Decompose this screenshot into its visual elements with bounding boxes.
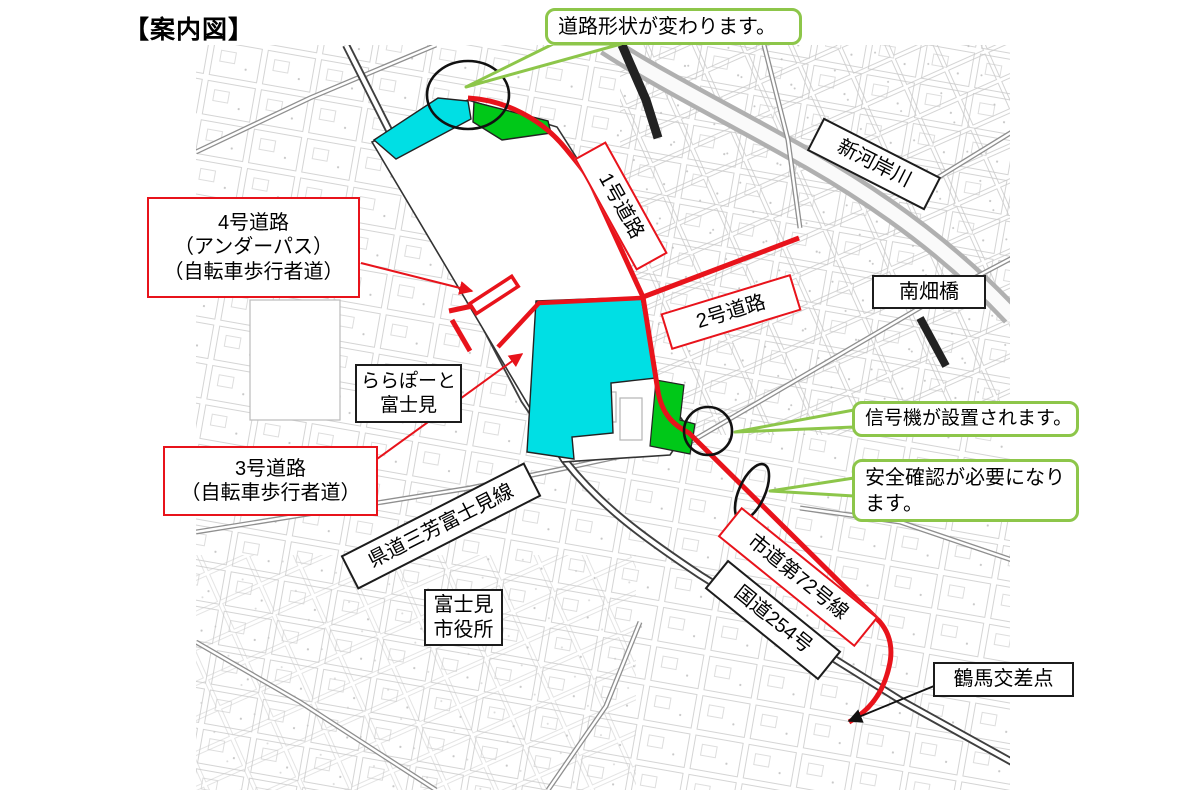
guide-map-page: 【案内図】 [0, 0, 1200, 800]
label-mall: ららぽーと 富士見 [355, 364, 462, 423]
label-city-hall-line1: 富士見 [434, 593, 494, 617]
label-mall-line2: 富士見 [380, 394, 437, 417]
label-road3: 3号道路 （自転車歩行者道） [163, 446, 378, 516]
callout-signal: 信号機が設置されます。 [852, 401, 1079, 437]
label-road3-line2: （自転車歩行者道） [181, 481, 361, 505]
label-road4-line2: （アンダーパス） [174, 235, 333, 259]
west-block [250, 300, 340, 420]
label-city-hall-line2: 市役所 [434, 618, 494, 642]
label-road4-line1: 4号道路 [218, 211, 289, 235]
parcel-texture-ne [620, 45, 1010, 435]
callout-road-shape: 道路形状が変わります。 [545, 8, 802, 45]
label-road4-line3: （自転車歩行者道） [164, 260, 344, 284]
label-intersection: 鶴馬交差点 [933, 662, 1074, 697]
page-title: 【案内図】 [124, 10, 254, 46]
label-bridge: 南畑橋 [872, 275, 986, 309]
callout-safety-line2: ます。 [865, 491, 923, 517]
label-road4: 4号道路 （アンダーパス） （自転車歩行者道） [147, 197, 360, 298]
callout-safety: 安全確認が必要になり ます。 [852, 459, 1079, 522]
callout-safety-line1: 安全確認が必要になり [865, 465, 1065, 491]
building-outline [620, 398, 642, 440]
label-city-hall: 富士見 市役所 [424, 589, 503, 646]
label-mall-line1: ららぽーと [361, 370, 456, 393]
label-road3-line1: 3号道路 [235, 457, 306, 481]
